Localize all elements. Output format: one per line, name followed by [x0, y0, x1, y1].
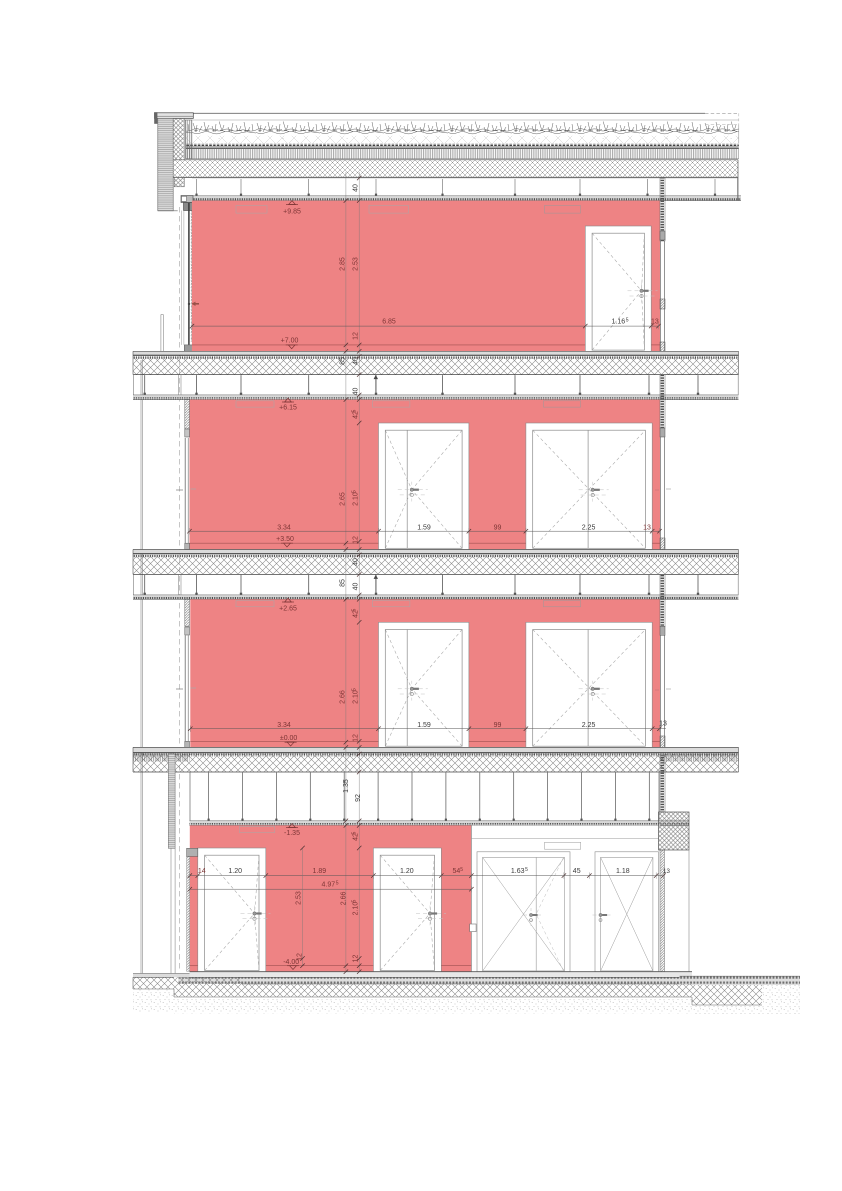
svg-text:2.53: 2.53 — [353, 257, 360, 271]
svg-text:1.20: 1.20 — [400, 868, 414, 875]
svg-text:1.35: 1.35 — [343, 779, 350, 793]
svg-text:13: 13 — [643, 524, 651, 531]
svg-text:5: 5 — [352, 900, 358, 903]
svg-text:1.59: 1.59 — [417, 722, 431, 729]
svg-text:3.34: 3.34 — [277, 524, 291, 531]
svg-text:3.34: 3.34 — [277, 722, 291, 729]
svg-text:12: 12 — [297, 953, 304, 961]
svg-text:54: 54 — [453, 868, 461, 875]
svg-text:+3.50: +3.50 — [276, 536, 294, 543]
svg-text:2.65: 2.65 — [340, 492, 347, 506]
svg-text:1.18: 1.18 — [616, 868, 630, 875]
svg-text:5: 5 — [351, 410, 357, 413]
svg-text:2.10: 2.10 — [353, 492, 360, 506]
svg-text:13: 13 — [663, 868, 670, 875]
svg-text:13: 13 — [651, 319, 659, 326]
svg-text:2.66: 2.66 — [341, 891, 348, 905]
svg-text:+7.00: +7.00 — [281, 338, 299, 345]
svg-text:2.10: 2.10 — [353, 902, 360, 916]
svg-text:5: 5 — [351, 688, 357, 691]
svg-text:13: 13 — [659, 720, 667, 727]
svg-text:2.10: 2.10 — [353, 690, 360, 704]
svg-text:1.59: 1.59 — [417, 524, 431, 531]
svg-text:4.97: 4.97 — [321, 882, 335, 889]
svg-text:99: 99 — [494, 524, 502, 531]
svg-text:5: 5 — [351, 490, 357, 493]
svg-text:-1.35: -1.35 — [284, 830, 300, 837]
svg-text:40: 40 — [353, 558, 360, 566]
svg-text:40: 40 — [353, 184, 360, 192]
svg-text:+2.65: +2.65 — [279, 606, 297, 613]
svg-text:2.25: 2.25 — [582, 722, 596, 729]
svg-text:2.25: 2.25 — [582, 524, 596, 531]
svg-text:+6.15: +6.15 — [279, 405, 297, 412]
svg-text:1.20: 1.20 — [228, 868, 242, 875]
svg-text:5: 5 — [352, 832, 358, 835]
svg-text:2.66: 2.66 — [340, 690, 347, 704]
svg-text:5: 5 — [626, 317, 629, 323]
svg-text:45: 45 — [573, 868, 581, 875]
svg-text:85: 85 — [340, 579, 347, 587]
svg-text:±0.00: ±0.00 — [280, 735, 298, 742]
svg-text:5: 5 — [525, 867, 528, 873]
svg-text:92: 92 — [355, 794, 362, 802]
svg-text:1.63: 1.63 — [511, 868, 525, 875]
svg-text:12: 12 — [353, 734, 360, 742]
svg-text:85: 85 — [340, 357, 347, 365]
svg-text:99: 99 — [494, 722, 502, 729]
svg-text:6.85: 6.85 — [382, 319, 396, 326]
svg-text:40: 40 — [353, 388, 360, 396]
svg-text:2.85: 2.85 — [340, 257, 347, 271]
svg-text:40: 40 — [353, 357, 360, 365]
svg-text:1.16: 1.16 — [611, 319, 625, 326]
svg-text:1.89: 1.89 — [312, 868, 326, 875]
svg-text:2.53: 2.53 — [296, 891, 303, 905]
svg-text:+9.85: +9.85 — [283, 209, 301, 216]
svg-text:5: 5 — [460, 867, 463, 873]
svg-text:40: 40 — [353, 583, 360, 591]
svg-text:12: 12 — [353, 536, 360, 544]
svg-text:5: 5 — [336, 880, 339, 886]
svg-text:12: 12 — [353, 955, 360, 963]
svg-text:14: 14 — [198, 868, 206, 875]
svg-text:12: 12 — [353, 332, 360, 340]
svg-text:5: 5 — [351, 609, 357, 612]
